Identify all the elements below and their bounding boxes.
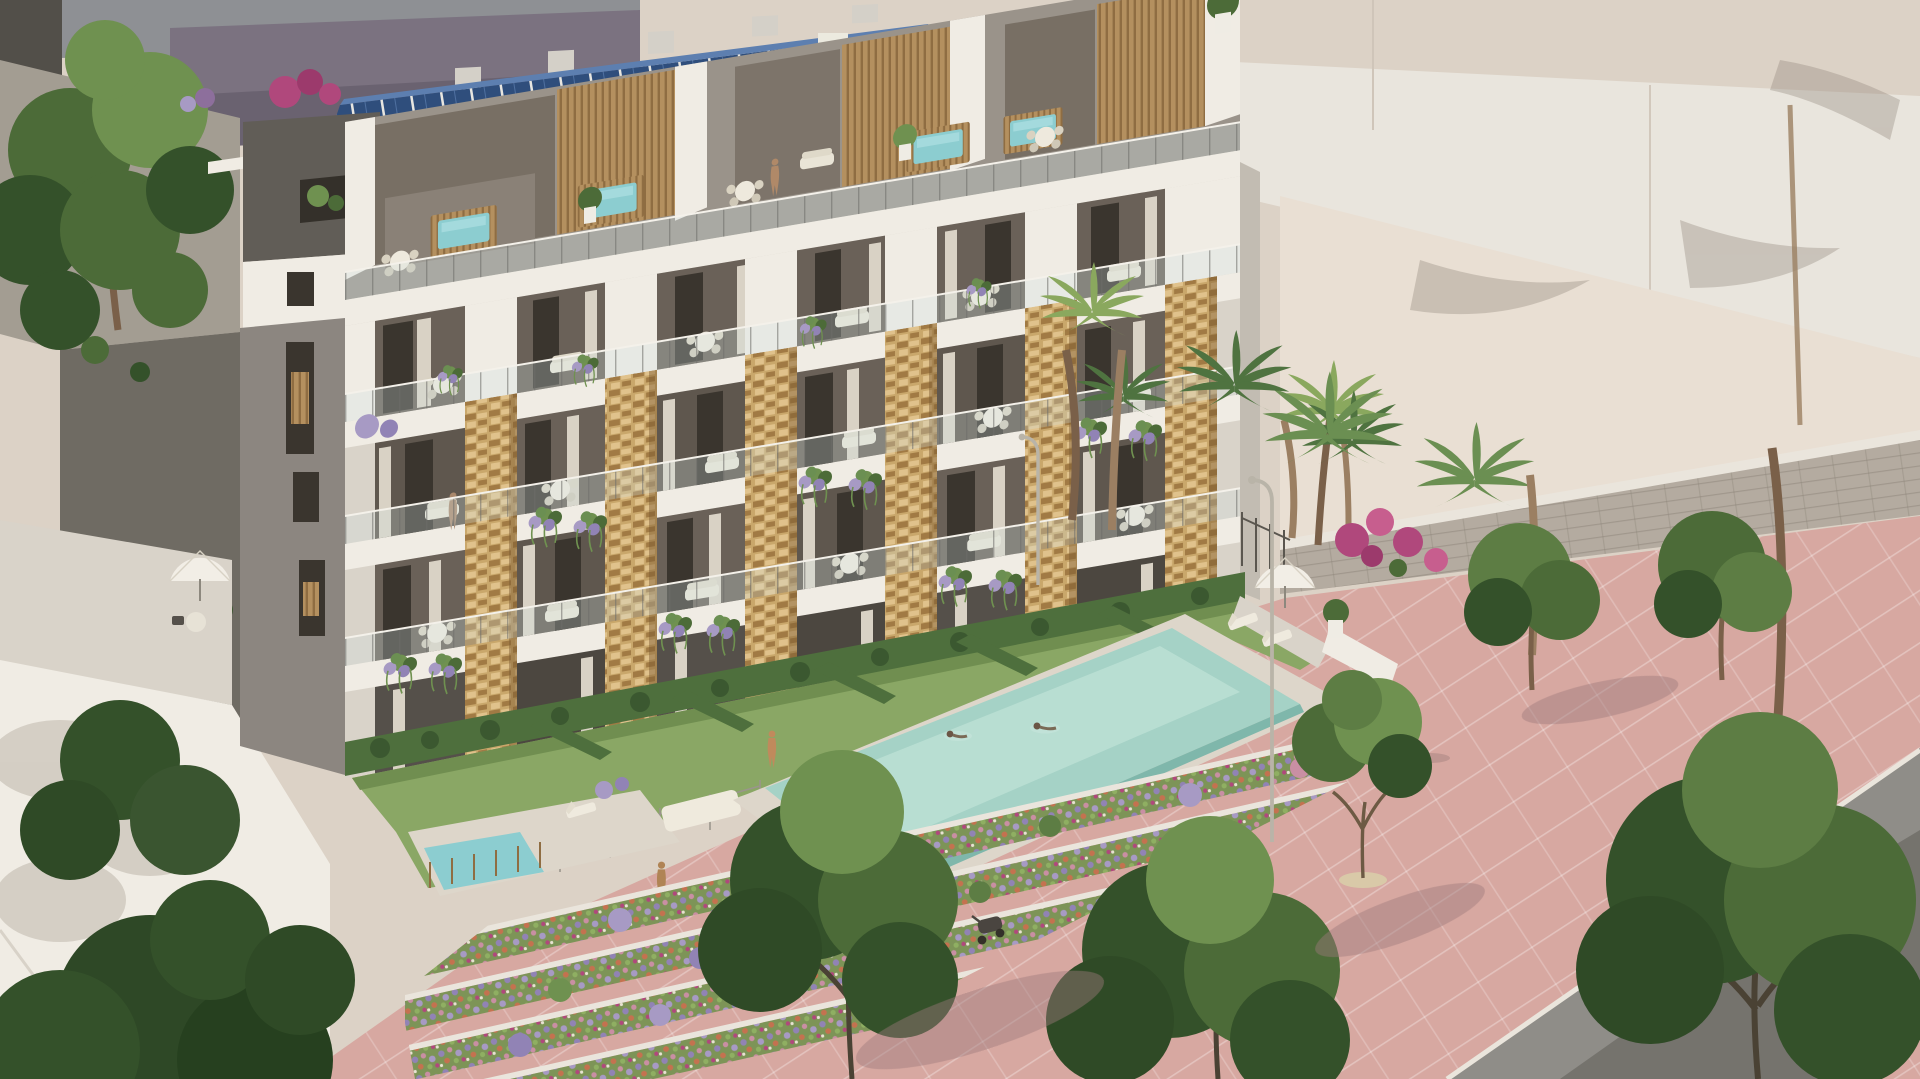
tower-window-2-slats bbox=[291, 372, 309, 424]
swimmer-2 bbox=[1030, 723, 1060, 734]
architectural-render: ; bbox=[0, 0, 1920, 1079]
penthouse-plant bbox=[307, 185, 329, 207]
penthouse-plant-2 bbox=[328, 195, 344, 211]
tower-window-1 bbox=[287, 272, 314, 306]
neighbour-table bbox=[186, 612, 206, 632]
neighbour-chair bbox=[172, 616, 184, 625]
tower-window-3 bbox=[293, 472, 319, 522]
render-canvas: ; bbox=[0, 0, 1920, 1079]
tower-window-4-slats bbox=[303, 582, 319, 616]
